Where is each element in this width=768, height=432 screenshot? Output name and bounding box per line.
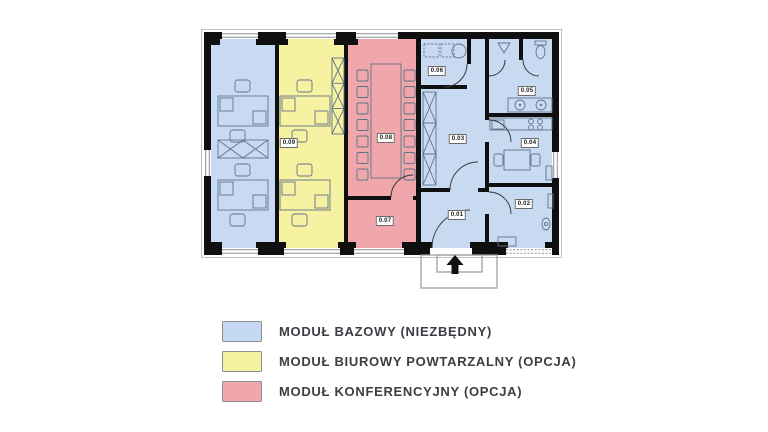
room-label-0-06: 0.06 <box>428 66 446 76</box>
legend-swatch-base <box>222 321 262 342</box>
room-label-0-07: 0.07 <box>376 216 394 226</box>
room-label-0-09: 0.09 <box>280 138 298 148</box>
module-base-left-floor <box>207 35 277 251</box>
legend-swatch-conference <box>222 381 262 402</box>
room-label-0-01: 0.01 <box>448 210 466 220</box>
legend-item-office: MODUŁ BIUROWY POWTARZALNY (OPCJA) <box>222 350 577 372</box>
room-label-0-03: 0.03 <box>449 134 467 144</box>
room-label-0-08: 0.08 <box>377 133 395 143</box>
entrance <box>421 255 497 288</box>
legend-swatch-office <box>222 351 262 372</box>
room-label-0-02: 0.02 <box>515 199 533 209</box>
legend-label-office: MODUŁ BIUROWY POWTARZALNY (OPCJA) <box>279 354 577 369</box>
room-label-0-04: 0.04 <box>521 138 539 148</box>
room-label-0-05: 0.05 <box>518 86 536 96</box>
floor-plan <box>0 0 768 310</box>
legend-item-base: MODUŁ BAZOWY (NIEZBĘDNY) <box>222 320 577 342</box>
legend: MODUŁ BAZOWY (NIEZBĘDNY) MODUŁ BIUROWY P… <box>222 320 577 402</box>
legend-label-base: MODUŁ BAZOWY (NIEZBĘDNY) <box>279 324 492 339</box>
legend-item-conference: MODUŁ KONFERENCYJNY (OPCJA) <box>222 380 577 402</box>
legend-label-conference: MODUŁ KONFERENCYJNY (OPCJA) <box>279 384 522 399</box>
floor-plan-page: 0.01 0.02 0.03 0.04 0.05 0.06 0.07 0.08 … <box>0 0 768 432</box>
